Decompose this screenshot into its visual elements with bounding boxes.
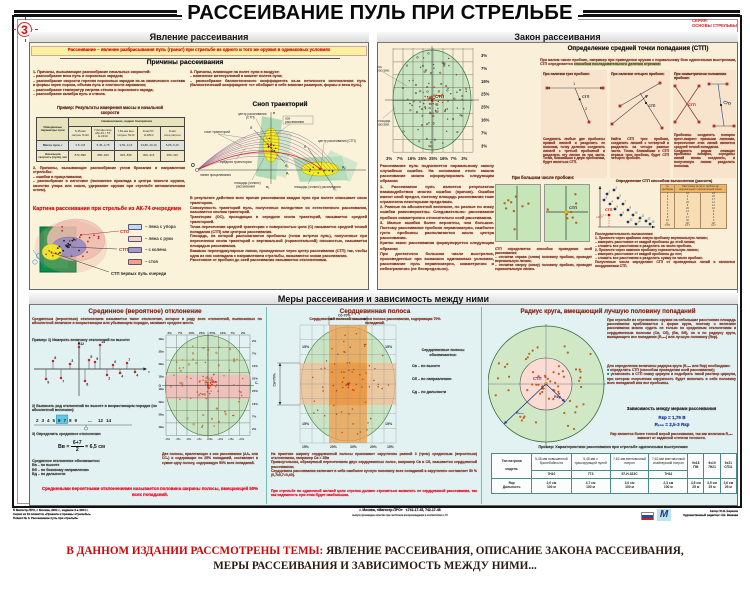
svg-text:14: 14 <box>638 220 641 224</box>
svg-text:2%: 2% <box>241 331 246 335</box>
svg-text:рассеив.: рассеив. <box>377 69 390 73</box>
svg-text:15%: 15% <box>385 422 393 426</box>
svg-text:С₁: С₁ <box>255 381 259 385</box>
svg-text:б: б <box>250 125 253 130</box>
svg-text:7%: 7% <box>481 66 487 71</box>
svg-text:9: 9 <box>47 381 49 385</box>
svg-text:+4Вв: +4Вв <box>239 438 245 441</box>
svg-text:15%: 15% <box>302 445 309 449</box>
svg-text:25%: 25% <box>481 105 490 110</box>
svg-text:20%: 20% <box>370 445 377 449</box>
svg-text:4: 4 <box>121 375 123 379</box>
svg-text:СТП: СТП <box>605 208 613 212</box>
svg-text:+13,7: +13,7 <box>596 215 603 219</box>
svg-text:центр рассеивания (СТП): центр рассеивания (СТП) <box>318 139 356 143</box>
svg-text:д: д <box>286 170 289 175</box>
svg-text:1: 1 <box>609 190 611 194</box>
svg-text:...: ... <box>88 418 92 423</box>
svg-text:д₁: д₁ <box>342 164 346 169</box>
svg-text:-2Вв: -2Вв <box>186 438 192 441</box>
svg-text:5: 5 <box>90 355 92 359</box>
svg-text:О: О <box>159 384 162 388</box>
svg-text:3%: 3% <box>386 156 392 161</box>
svg-text:рассеивания: рассеивания <box>285 120 304 124</box>
svg-text:25%: 25% <box>481 92 490 97</box>
svg-text:2: 2 <box>616 186 618 190</box>
svg-text:7: 7 <box>128 358 130 362</box>
svg-text:7%: 7% <box>252 352 257 356</box>
svg-text:15%: 15% <box>385 345 393 349</box>
svg-text:3%: 3% <box>481 143 487 148</box>
svg-text:25%: 25% <box>429 156 438 161</box>
svg-text:б₁: б₁ <box>285 163 289 168</box>
svg-text:2: 2 <box>36 418 39 423</box>
svg-text:4: 4 <box>136 374 138 378</box>
svg-text:2: 2 <box>108 377 110 381</box>
svg-text:Св=70%: Св=70% <box>273 373 277 386</box>
svg-text:8: 8 <box>630 206 632 210</box>
svg-text:2%: 2% <box>252 427 257 431</box>
svg-text:О: О <box>191 163 195 169</box>
svg-text:4: 4 <box>612 200 614 204</box>
svg-text:СТП: СТП <box>649 104 656 108</box>
svg-text:4: 4 <box>47 418 50 423</box>
svg-text:7: 7 <box>62 380 64 384</box>
svg-text:СТП: СТП <box>435 94 444 99</box>
svg-text:10: 10 <box>635 211 638 215</box>
svg-text:9: 9 <box>96 357 98 361</box>
svg-text:12: 12 <box>630 218 633 222</box>
svg-text:8: 8 <box>86 383 88 387</box>
svg-text:16%: 16% <box>481 79 490 84</box>
svg-text:сноп траекторий: сноп траекторий <box>204 130 230 134</box>
svg-text:3: 3 <box>42 418 45 423</box>
svg-text:15%: 15% <box>302 422 310 426</box>
svg-text:СТП: СТП <box>723 100 732 106</box>
svg-text:9: 9 <box>623 211 625 215</box>
svg-text:6: 6 <box>114 360 116 364</box>
svg-text:2%: 2% <box>168 331 173 335</box>
svg-text:16%: 16% <box>252 364 258 368</box>
svg-text:14: 14 <box>101 340 105 344</box>
svg-text:-4Вв: -4Вв <box>165 438 171 441</box>
svg-text:Сб-70%: Сб-70% <box>338 313 350 317</box>
svg-text:25%: 25% <box>199 331 205 335</box>
svg-text:2%: 2% <box>252 339 257 343</box>
svg-text:площадь (эллипс) рассеивания: площадь (эллипс) рассеивания <box>294 185 341 189</box>
svg-text:2Вв: 2Вв <box>210 380 218 384</box>
svg-text:15%: 15% <box>302 345 310 349</box>
svg-text:11: 11 <box>642 214 645 218</box>
svg-text:средняя траектория: средняя траектория <box>220 160 252 164</box>
svg-text:7%: 7% <box>481 130 487 135</box>
svg-text:+3Вв: +3Вв <box>228 438 234 441</box>
svg-text:6: 6 <box>58 418 61 423</box>
svg-text:5: 5 <box>53 418 56 423</box>
svg-text:1Вв: 1Вв <box>159 375 165 379</box>
svg-text:в: в <box>273 110 275 115</box>
svg-text:2: 2 <box>585 106 588 111</box>
svg-text:7%: 7% <box>178 331 183 335</box>
svg-text:7: 7 <box>625 200 627 204</box>
svg-text:линия прицеливания: линия прицеливания <box>200 173 231 177</box>
svg-text:3Вв: 3Вв <box>159 350 165 354</box>
svg-text:2Вв: 2Вв <box>159 362 165 366</box>
svg-text:30%: 30% <box>350 445 357 449</box>
svg-text:6: 6 <box>617 205 619 209</box>
svg-text:13: 13 <box>648 217 651 221</box>
svg-text:3: 3 <box>71 359 73 363</box>
svg-text:15%: 15% <box>387 445 394 449</box>
svg-text:14: 14 <box>106 418 112 423</box>
svg-text:8: 8 <box>54 356 56 360</box>
svg-text:-1Вв: -1Вв <box>197 438 203 441</box>
svg-text:-3Вв: -3Вв <box>176 438 182 441</box>
svg-text:2Вв: 2Вв <box>159 400 165 404</box>
svg-text:рассеивания: рассеивания <box>236 185 255 189</box>
svg-text:СТП: СТП <box>119 247 128 252</box>
svg-text:3%: 3% <box>481 53 487 58</box>
svg-text:4Вв: 4Вв <box>159 337 165 341</box>
svg-text:3%: 3% <box>461 156 467 161</box>
svg-text:7%: 7% <box>397 156 403 161</box>
svg-text:1: 1 <box>573 81 576 86</box>
svg-text:3Вв: 3Вв <box>159 412 165 416</box>
svg-text:16%: 16% <box>440 156 449 161</box>
svg-text:5: 5 <box>620 194 622 198</box>
svg-text:16%: 16% <box>252 402 258 406</box>
svg-text:25%: 25% <box>210 331 216 335</box>
svg-text:4Вв: 4Вв <box>159 425 165 429</box>
svg-text:9: 9 <box>75 418 78 423</box>
svg-text:+1Вв: +1Вв <box>207 438 213 441</box>
svg-text:R₁₀₀: R₁₀₀ <box>516 411 524 415</box>
svg-text:рассеив.: рассеив. <box>377 123 390 127</box>
svg-text:СТП: СТП <box>582 95 590 99</box>
svg-text:х: х <box>148 370 150 374</box>
svg-text:в₁: в₁ <box>266 184 270 189</box>
svg-text:Rкр: Rкр <box>554 395 562 399</box>
svg-text:12: 12 <box>98 418 104 423</box>
svg-text:7: 7 <box>64 418 67 423</box>
svg-text:(СТП): (СТП) <box>246 116 255 120</box>
svg-text:СТП: СТП <box>569 205 577 210</box>
svg-text:25%: 25% <box>418 156 427 161</box>
svg-text:7%: 7% <box>252 414 257 418</box>
svg-text:25%: 25% <box>252 389 258 393</box>
svg-text:СТП: СТП <box>533 376 542 381</box>
svg-text:12: 12 <box>80 342 84 346</box>
svg-text:7%: 7% <box>231 331 236 335</box>
svg-text:20%: 20% <box>330 445 337 449</box>
svg-text:3: 3 <box>606 196 608 200</box>
svg-text:16%: 16% <box>189 331 195 335</box>
svg-text:7%: 7% <box>451 156 457 161</box>
svg-text:16%: 16% <box>408 156 417 161</box>
svg-text:+2Вв: +2Вв <box>218 438 224 441</box>
svg-text:15: 15 <box>652 220 655 224</box>
svg-text:16%: 16% <box>481 118 490 123</box>
svg-text:16%: 16% <box>220 331 226 335</box>
svg-text:СТП: СТП <box>688 103 696 107</box>
svg-text:8: 8 <box>69 418 72 423</box>
svg-text:СТП первых пуль очереди: СТП первых пуль очереди <box>111 271 167 276</box>
